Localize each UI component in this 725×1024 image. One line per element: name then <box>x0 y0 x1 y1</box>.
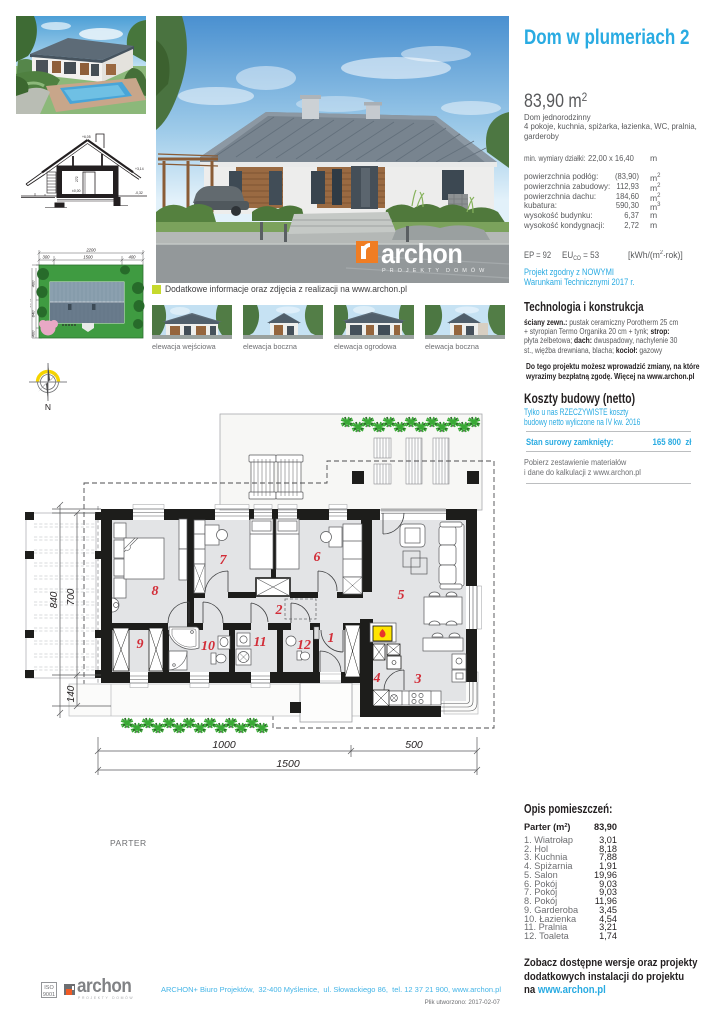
svg-text:1500: 1500 <box>83 255 93 260</box>
svg-text:1: 1 <box>328 631 335 646</box>
svg-text:400: 400 <box>31 280 36 287</box>
svg-text:5: 5 <box>398 588 405 603</box>
svg-text:12: 12 <box>297 638 311 653</box>
svg-text:8: 8 <box>152 584 159 599</box>
svg-text:1500: 1500 <box>276 758 300 770</box>
svg-text:11: 11 <box>253 635 266 650</box>
svg-text:4: 4 <box>373 671 381 686</box>
svg-text:+6,05: +6,05 <box>82 135 91 139</box>
svg-text:500: 500 <box>405 739 423 751</box>
svg-text:140: 140 <box>66 685 77 702</box>
svg-text:3: 3 <box>414 672 422 687</box>
svg-text:272: 272 <box>75 176 79 182</box>
svg-text:2: 2 <box>275 603 283 618</box>
svg-text:840: 840 <box>31 310 36 317</box>
svg-text:10: 10 <box>201 639 215 654</box>
svg-text:7: 7 <box>220 553 228 568</box>
svg-text:400: 400 <box>129 255 137 260</box>
svg-text:N: N <box>45 402 51 412</box>
svg-text:300: 300 <box>43 255 51 260</box>
svg-text:2200: 2200 <box>85 248 96 253</box>
svg-text:840: 840 <box>49 591 60 608</box>
svg-text:-0,32: -0,32 <box>135 191 143 195</box>
svg-text:DOMÓW: DOMÓW <box>446 267 488 274</box>
svg-text:1000: 1000 <box>212 739 236 751</box>
svg-text:6: 6 <box>314 550 321 565</box>
svg-text:1640: 1640 <box>30 298 32 308</box>
svg-text:±0,00: ±0,00 <box>72 189 81 193</box>
svg-text:PROJEKTY: PROJEKTY <box>382 268 443 274</box>
svg-text:+3,14: +3,14 <box>135 167 144 171</box>
svg-text:400: 400 <box>31 330 36 337</box>
svg-text:9: 9 <box>137 637 144 652</box>
svg-text:700: 700 <box>66 588 77 605</box>
svg-text:archon: archon <box>381 238 462 270</box>
